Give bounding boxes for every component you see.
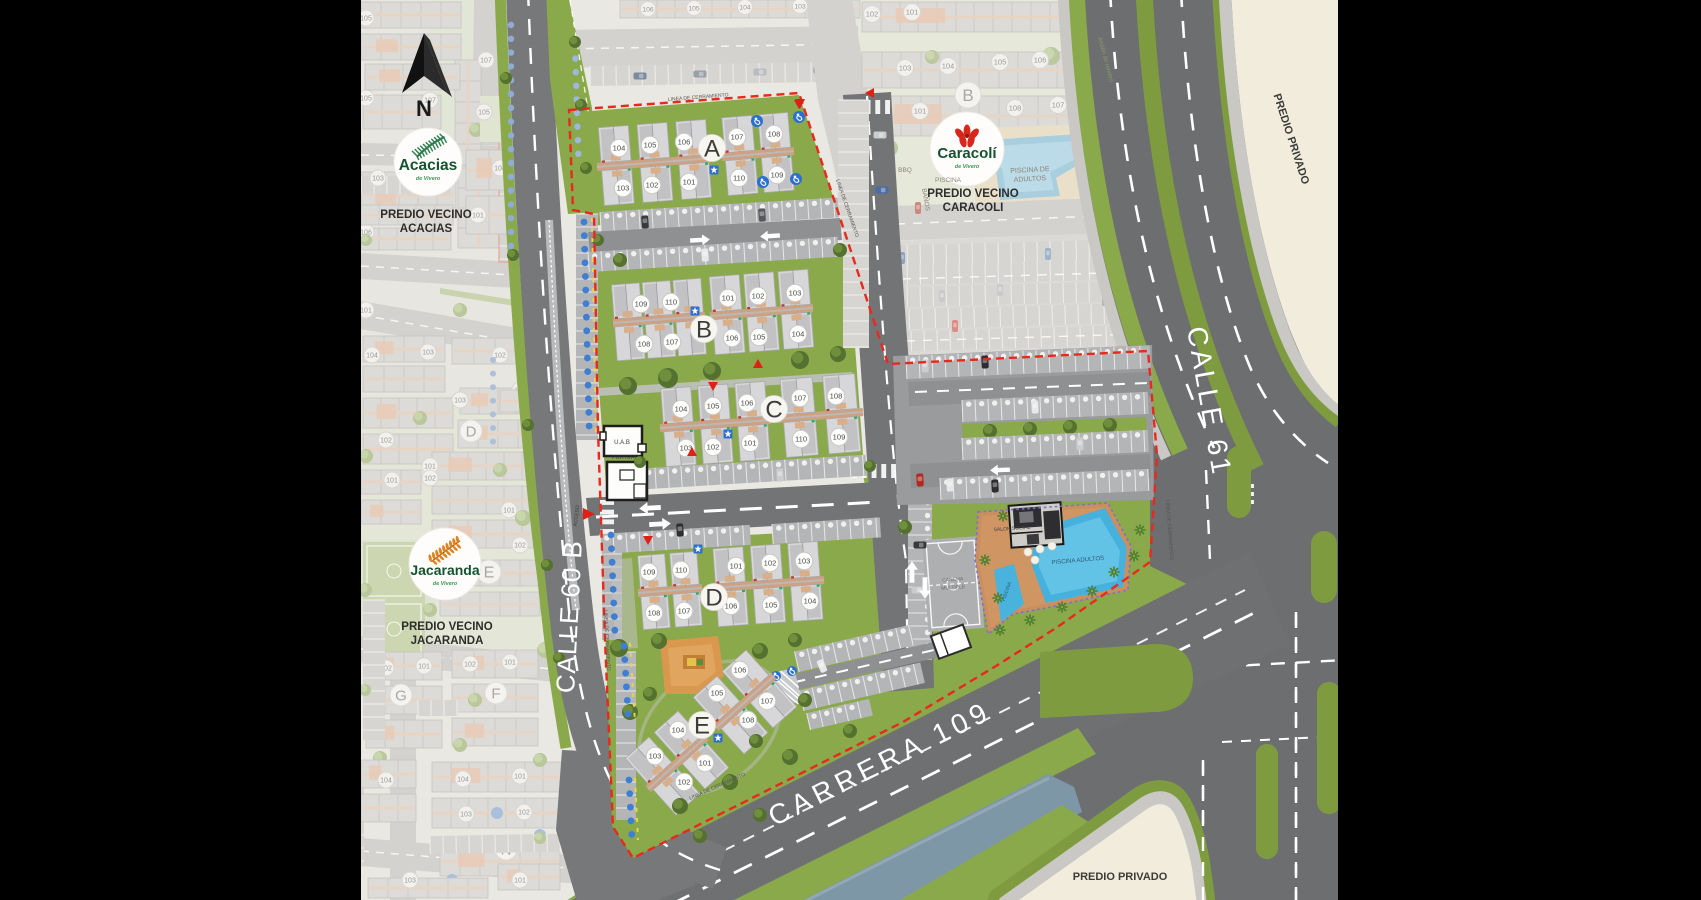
svg-text:103: 103 bbox=[372, 176, 384, 183]
svg-text:108: 108 bbox=[648, 609, 661, 618]
svg-text:103: 103 bbox=[454, 398, 466, 405]
svg-text:103: 103 bbox=[789, 289, 802, 298]
svg-text:Acacias: Acacias bbox=[399, 157, 458, 174]
svg-text:PREDIO VECINO: PREDIO VECINO bbox=[380, 209, 471, 221]
svg-text:106: 106 bbox=[725, 602, 738, 611]
svg-text:102: 102 bbox=[380, 438, 392, 445]
svg-text:103: 103 bbox=[794, 3, 806, 10]
svg-text:101: 101 bbox=[906, 8, 919, 17]
svg-text:de Vivero: de Vivero bbox=[955, 164, 980, 170]
svg-text:110: 110 bbox=[665, 298, 677, 307]
svg-text:102: 102 bbox=[494, 353, 506, 360]
svg-text:102: 102 bbox=[646, 181, 659, 190]
svg-text:102: 102 bbox=[424, 476, 436, 483]
svg-text:102: 102 bbox=[764, 559, 777, 568]
svg-text:103: 103 bbox=[798, 557, 811, 566]
svg-text:103: 103 bbox=[899, 64, 912, 73]
svg-text:E: E bbox=[484, 565, 495, 582]
svg-text:110: 110 bbox=[675, 566, 687, 575]
svg-text:N: N bbox=[416, 96, 432, 121]
svg-text:U.A.B: U.A.B bbox=[614, 440, 630, 446]
svg-text:105: 105 bbox=[753, 333, 766, 342]
svg-text:105: 105 bbox=[707, 402, 720, 411]
svg-text:108: 108 bbox=[768, 130, 781, 139]
svg-text:de Vivero: de Vivero bbox=[416, 176, 441, 182]
svg-text:102: 102 bbox=[752, 292, 765, 301]
svg-text:105: 105 bbox=[688, 5, 700, 12]
svg-text:103: 103 bbox=[404, 878, 416, 885]
svg-text:103: 103 bbox=[649, 752, 662, 761]
svg-text:101: 101 bbox=[504, 660, 516, 667]
svg-text:103: 103 bbox=[617, 184, 630, 193]
svg-text:101: 101 bbox=[503, 508, 515, 515]
svg-text:105: 105 bbox=[711, 689, 724, 698]
svg-text:109: 109 bbox=[643, 568, 656, 577]
svg-text:105: 105 bbox=[478, 110, 490, 117]
svg-text:101: 101 bbox=[744, 439, 757, 448]
svg-text:106: 106 bbox=[678, 138, 691, 147]
svg-text:110: 110 bbox=[733, 174, 745, 183]
svg-text:B: B bbox=[696, 316, 712, 343]
svg-text:PREDIO VECINO: PREDIO VECINO bbox=[401, 621, 492, 633]
svg-text:104: 104 bbox=[380, 778, 392, 785]
svg-text:104: 104 bbox=[804, 597, 817, 606]
svg-text:A: A bbox=[704, 135, 720, 162]
svg-text:106: 106 bbox=[726, 334, 739, 343]
svg-text:108: 108 bbox=[638, 340, 651, 349]
svg-text:105: 105 bbox=[765, 601, 778, 610]
svg-text:105: 105 bbox=[994, 58, 1007, 67]
svg-text:BBQ: BBQ bbox=[898, 167, 912, 174]
svg-text:105: 105 bbox=[644, 141, 657, 150]
svg-text:101: 101 bbox=[418, 664, 430, 671]
svg-text:101: 101 bbox=[360, 308, 372, 315]
svg-text:102: 102 bbox=[707, 443, 720, 452]
svg-text:105: 105 bbox=[360, 16, 372, 23]
svg-text:104: 104 bbox=[792, 330, 805, 339]
svg-text:E: E bbox=[694, 712, 710, 739]
svg-text:101: 101 bbox=[386, 478, 398, 485]
svg-text:101: 101 bbox=[914, 107, 927, 116]
svg-text:107: 107 bbox=[731, 133, 744, 142]
svg-text:104: 104 bbox=[366, 353, 378, 360]
svg-text:104: 104 bbox=[613, 144, 626, 153]
svg-text:de Vivero: de Vivero bbox=[433, 581, 458, 587]
svg-text:PREDIO PRIVADO: PREDIO PRIVADO bbox=[1073, 871, 1168, 883]
svg-text:101: 101 bbox=[730, 562, 743, 571]
svg-text:ACACIAS: ACACIAS bbox=[400, 223, 453, 235]
svg-text:106: 106 bbox=[741, 399, 754, 408]
svg-text:108: 108 bbox=[1009, 104, 1022, 113]
svg-text:JACARANDA: JACARANDA bbox=[411, 635, 484, 647]
svg-text:Caracolí: Caracolí bbox=[937, 145, 997, 162]
svg-text:101: 101 bbox=[472, 213, 484, 220]
svg-text:101: 101 bbox=[424, 464, 436, 471]
svg-text:102: 102 bbox=[514, 543, 526, 550]
svg-text:102: 102 bbox=[866, 10, 879, 19]
svg-text:108: 108 bbox=[742, 716, 755, 725]
svg-text:C: C bbox=[765, 396, 782, 423]
svg-text:104: 104 bbox=[675, 405, 688, 414]
svg-text:104: 104 bbox=[739, 4, 751, 11]
svg-text:105: 105 bbox=[360, 96, 372, 103]
svg-text:101: 101 bbox=[683, 178, 696, 187]
svg-text:107: 107 bbox=[480, 58, 492, 65]
svg-text:101: 101 bbox=[514, 774, 526, 781]
svg-text:PREDIO VECINO: PREDIO VECINO bbox=[927, 188, 1018, 200]
svg-text:106: 106 bbox=[734, 666, 747, 675]
svg-text:Jacaranda: Jacaranda bbox=[410, 562, 479, 578]
svg-text:103: 103 bbox=[422, 350, 434, 357]
svg-text:103: 103 bbox=[460, 812, 472, 819]
svg-text:102: 102 bbox=[518, 810, 530, 817]
svg-text:D: D bbox=[705, 584, 722, 611]
svg-text:101: 101 bbox=[722, 294, 735, 303]
svg-text:107: 107 bbox=[678, 607, 691, 616]
svg-text:109: 109 bbox=[833, 433, 846, 442]
svg-text:106: 106 bbox=[642, 6, 654, 13]
svg-text:102: 102 bbox=[464, 662, 476, 669]
svg-text:104: 104 bbox=[672, 726, 685, 735]
svg-text:107: 107 bbox=[761, 697, 774, 706]
svg-text:101: 101 bbox=[514, 878, 526, 885]
svg-text:108: 108 bbox=[830, 392, 843, 401]
svg-text:109: 109 bbox=[771, 171, 784, 180]
svg-text:106: 106 bbox=[1034, 56, 1047, 65]
svg-text:104: 104 bbox=[457, 777, 469, 784]
svg-text:B: B bbox=[962, 86, 973, 105]
svg-text:CARACOLI: CARACOLI bbox=[943, 202, 1004, 214]
svg-text:110: 110 bbox=[795, 435, 807, 444]
svg-text:104: 104 bbox=[942, 62, 955, 71]
svg-text:D: D bbox=[466, 423, 477, 440]
svg-text:PISCINA: PISCINA bbox=[935, 177, 962, 184]
svg-text:G: G bbox=[395, 687, 407, 704]
svg-text:102: 102 bbox=[678, 778, 691, 787]
svg-text:107: 107 bbox=[794, 394, 807, 403]
svg-text:F: F bbox=[491, 685, 500, 702]
svg-text:107: 107 bbox=[666, 338, 679, 347]
svg-text:107: 107 bbox=[1052, 101, 1065, 110]
svg-text:101: 101 bbox=[699, 759, 712, 768]
svg-text:109: 109 bbox=[635, 300, 648, 309]
